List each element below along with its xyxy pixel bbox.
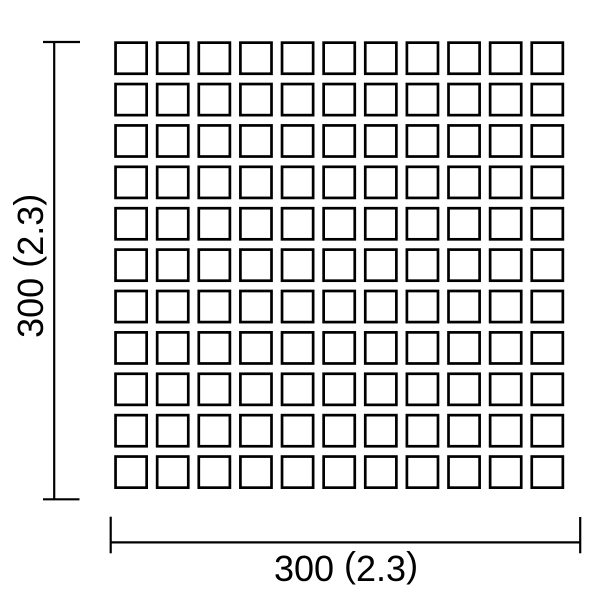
svg-text:300 (2.3): 300 (2.3) <box>6 194 51 338</box>
svg-text:300 (2.3): 300 (2.3) <box>274 544 418 589</box>
